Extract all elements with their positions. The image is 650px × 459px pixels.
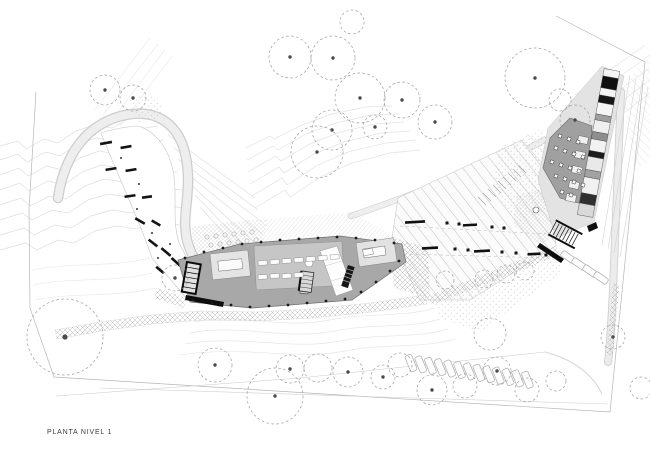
plaza-dot	[138, 183, 140, 185]
column-dot	[325, 300, 328, 303]
column-dot	[355, 237, 358, 240]
column-dot	[203, 251, 206, 254]
outdoor-table	[232, 232, 236, 236]
room-meeting	[210, 250, 251, 280]
column-dot	[268, 305, 271, 308]
outdoor-table	[218, 242, 222, 246]
contour-line	[35, 288, 155, 300]
plaza-dot	[169, 243, 171, 245]
outdoor-table	[250, 230, 254, 234]
contour-line	[185, 329, 448, 344]
plaza-dot	[120, 157, 122, 159]
tree-trunk	[611, 335, 614, 338]
outdoor-table	[223, 233, 227, 237]
contour-line	[33, 273, 152, 285]
tree-trunk	[433, 120, 436, 123]
column-dot	[230, 304, 233, 307]
plan-title: PLANTA NIVEL 1	[47, 429, 112, 436]
tree-canopy	[630, 377, 650, 399]
parking-stall	[453, 361, 466, 379]
site-plan-drawing: PLANTA NIVEL 1	[0, 0, 650, 459]
column-dot	[287, 304, 290, 307]
column-dot	[192, 299, 195, 302]
column-dot	[336, 236, 339, 239]
bar-cell	[577, 203, 595, 218]
contour-line	[32, 258, 150, 270]
outdoor-table	[254, 238, 258, 242]
desk	[258, 260, 267, 265]
desk	[294, 272, 303, 277]
contour-line	[247, 114, 398, 160]
parking-stall	[593, 271, 609, 285]
bench-square	[500, 250, 503, 253]
road-line	[545, 352, 602, 394]
outdoor-table	[214, 234, 218, 238]
tree-trunk	[131, 96, 134, 99]
column-round	[533, 207, 539, 213]
tree-trunk	[315, 150, 318, 153]
tree-trunk	[288, 367, 291, 370]
tree-trunk	[173, 276, 176, 279]
parking-stall	[492, 366, 505, 384]
contour-line	[246, 106, 392, 148]
parking-stall	[443, 359, 456, 377]
tree-trunk	[495, 369, 498, 372]
tree-trunk	[103, 88, 106, 91]
bench-square	[514, 251, 517, 254]
column-dot	[393, 242, 396, 245]
tree-trunk	[62, 334, 67, 339]
parking-lot	[405, 354, 534, 389]
tree-trunk	[273, 394, 276, 397]
outdoor-table	[227, 241, 231, 245]
column-dot	[344, 298, 347, 301]
tree-canopy	[546, 371, 566, 391]
outdoor-table	[205, 235, 209, 239]
site-plan-sheet: PLANTA NIVEL 1	[0, 0, 650, 459]
desk	[282, 273, 291, 278]
desk	[258, 274, 267, 279]
desk	[282, 258, 291, 263]
tree-trunk	[358, 96, 361, 99]
plaza-dot	[157, 257, 159, 259]
contour-line	[190, 319, 440, 334]
room-office	[356, 238, 397, 267]
parking-stall	[521, 371, 534, 389]
tree-trunk	[213, 363, 216, 366]
parking-stall	[414, 355, 427, 373]
bench-bar	[105, 167, 116, 171]
tree-trunk	[288, 55, 291, 58]
plaza-dot	[136, 208, 138, 210]
desk	[306, 256, 315, 261]
bench-square	[453, 247, 456, 250]
parking-stall	[511, 369, 524, 387]
parking-stall	[434, 358, 447, 376]
contour-line	[180, 339, 455, 355]
column-dot	[222, 247, 225, 250]
column-dot	[184, 257, 187, 260]
bench-square	[490, 225, 493, 228]
column-dot	[241, 243, 244, 246]
parking-stall	[424, 357, 437, 375]
outdoor-table	[236, 240, 240, 244]
column-dot	[260, 241, 263, 244]
tree-trunk	[533, 76, 536, 79]
tree-canopy	[304, 354, 332, 382]
tree-canopy	[453, 374, 477, 398]
column-dot	[317, 237, 320, 240]
outdoor-table	[209, 243, 213, 247]
column-dot	[360, 291, 363, 294]
diag-hatch-patch	[622, 58, 650, 170]
tree-canopy	[340, 10, 364, 34]
bench-square	[457, 222, 460, 225]
outdoor-table	[245, 239, 249, 243]
tree-trunk	[331, 56, 334, 59]
column-dot	[298, 238, 301, 241]
column-dot	[375, 281, 378, 284]
tree-trunk	[400, 98, 403, 101]
column-dot	[398, 260, 401, 263]
bench-square	[445, 221, 448, 224]
bench-square	[502, 226, 505, 229]
tree-trunk	[573, 118, 576, 121]
road-line	[100, 388, 608, 404]
outdoor-table	[241, 231, 245, 235]
tree-trunk	[373, 125, 376, 128]
parking-stalls-east	[560, 250, 609, 285]
desk	[270, 273, 279, 278]
column-dot	[211, 302, 214, 305]
column-dot	[279, 239, 282, 242]
column-dot	[249, 306, 252, 309]
desk	[318, 255, 327, 260]
plaza-dot	[151, 232, 153, 234]
column-dot	[306, 302, 309, 305]
desk	[270, 259, 279, 264]
tree-trunk	[430, 388, 433, 391]
tree-trunk	[346, 370, 349, 373]
contour-line	[252, 140, 416, 196]
parking-stall	[405, 354, 418, 372]
parking-stall	[482, 365, 495, 383]
bench-square	[466, 248, 469, 251]
column-dot	[389, 270, 392, 273]
column-dot	[374, 239, 377, 242]
desk	[294, 257, 303, 262]
tree-trunk	[381, 375, 384, 378]
desk	[330, 254, 339, 259]
bench-square	[544, 253, 547, 256]
